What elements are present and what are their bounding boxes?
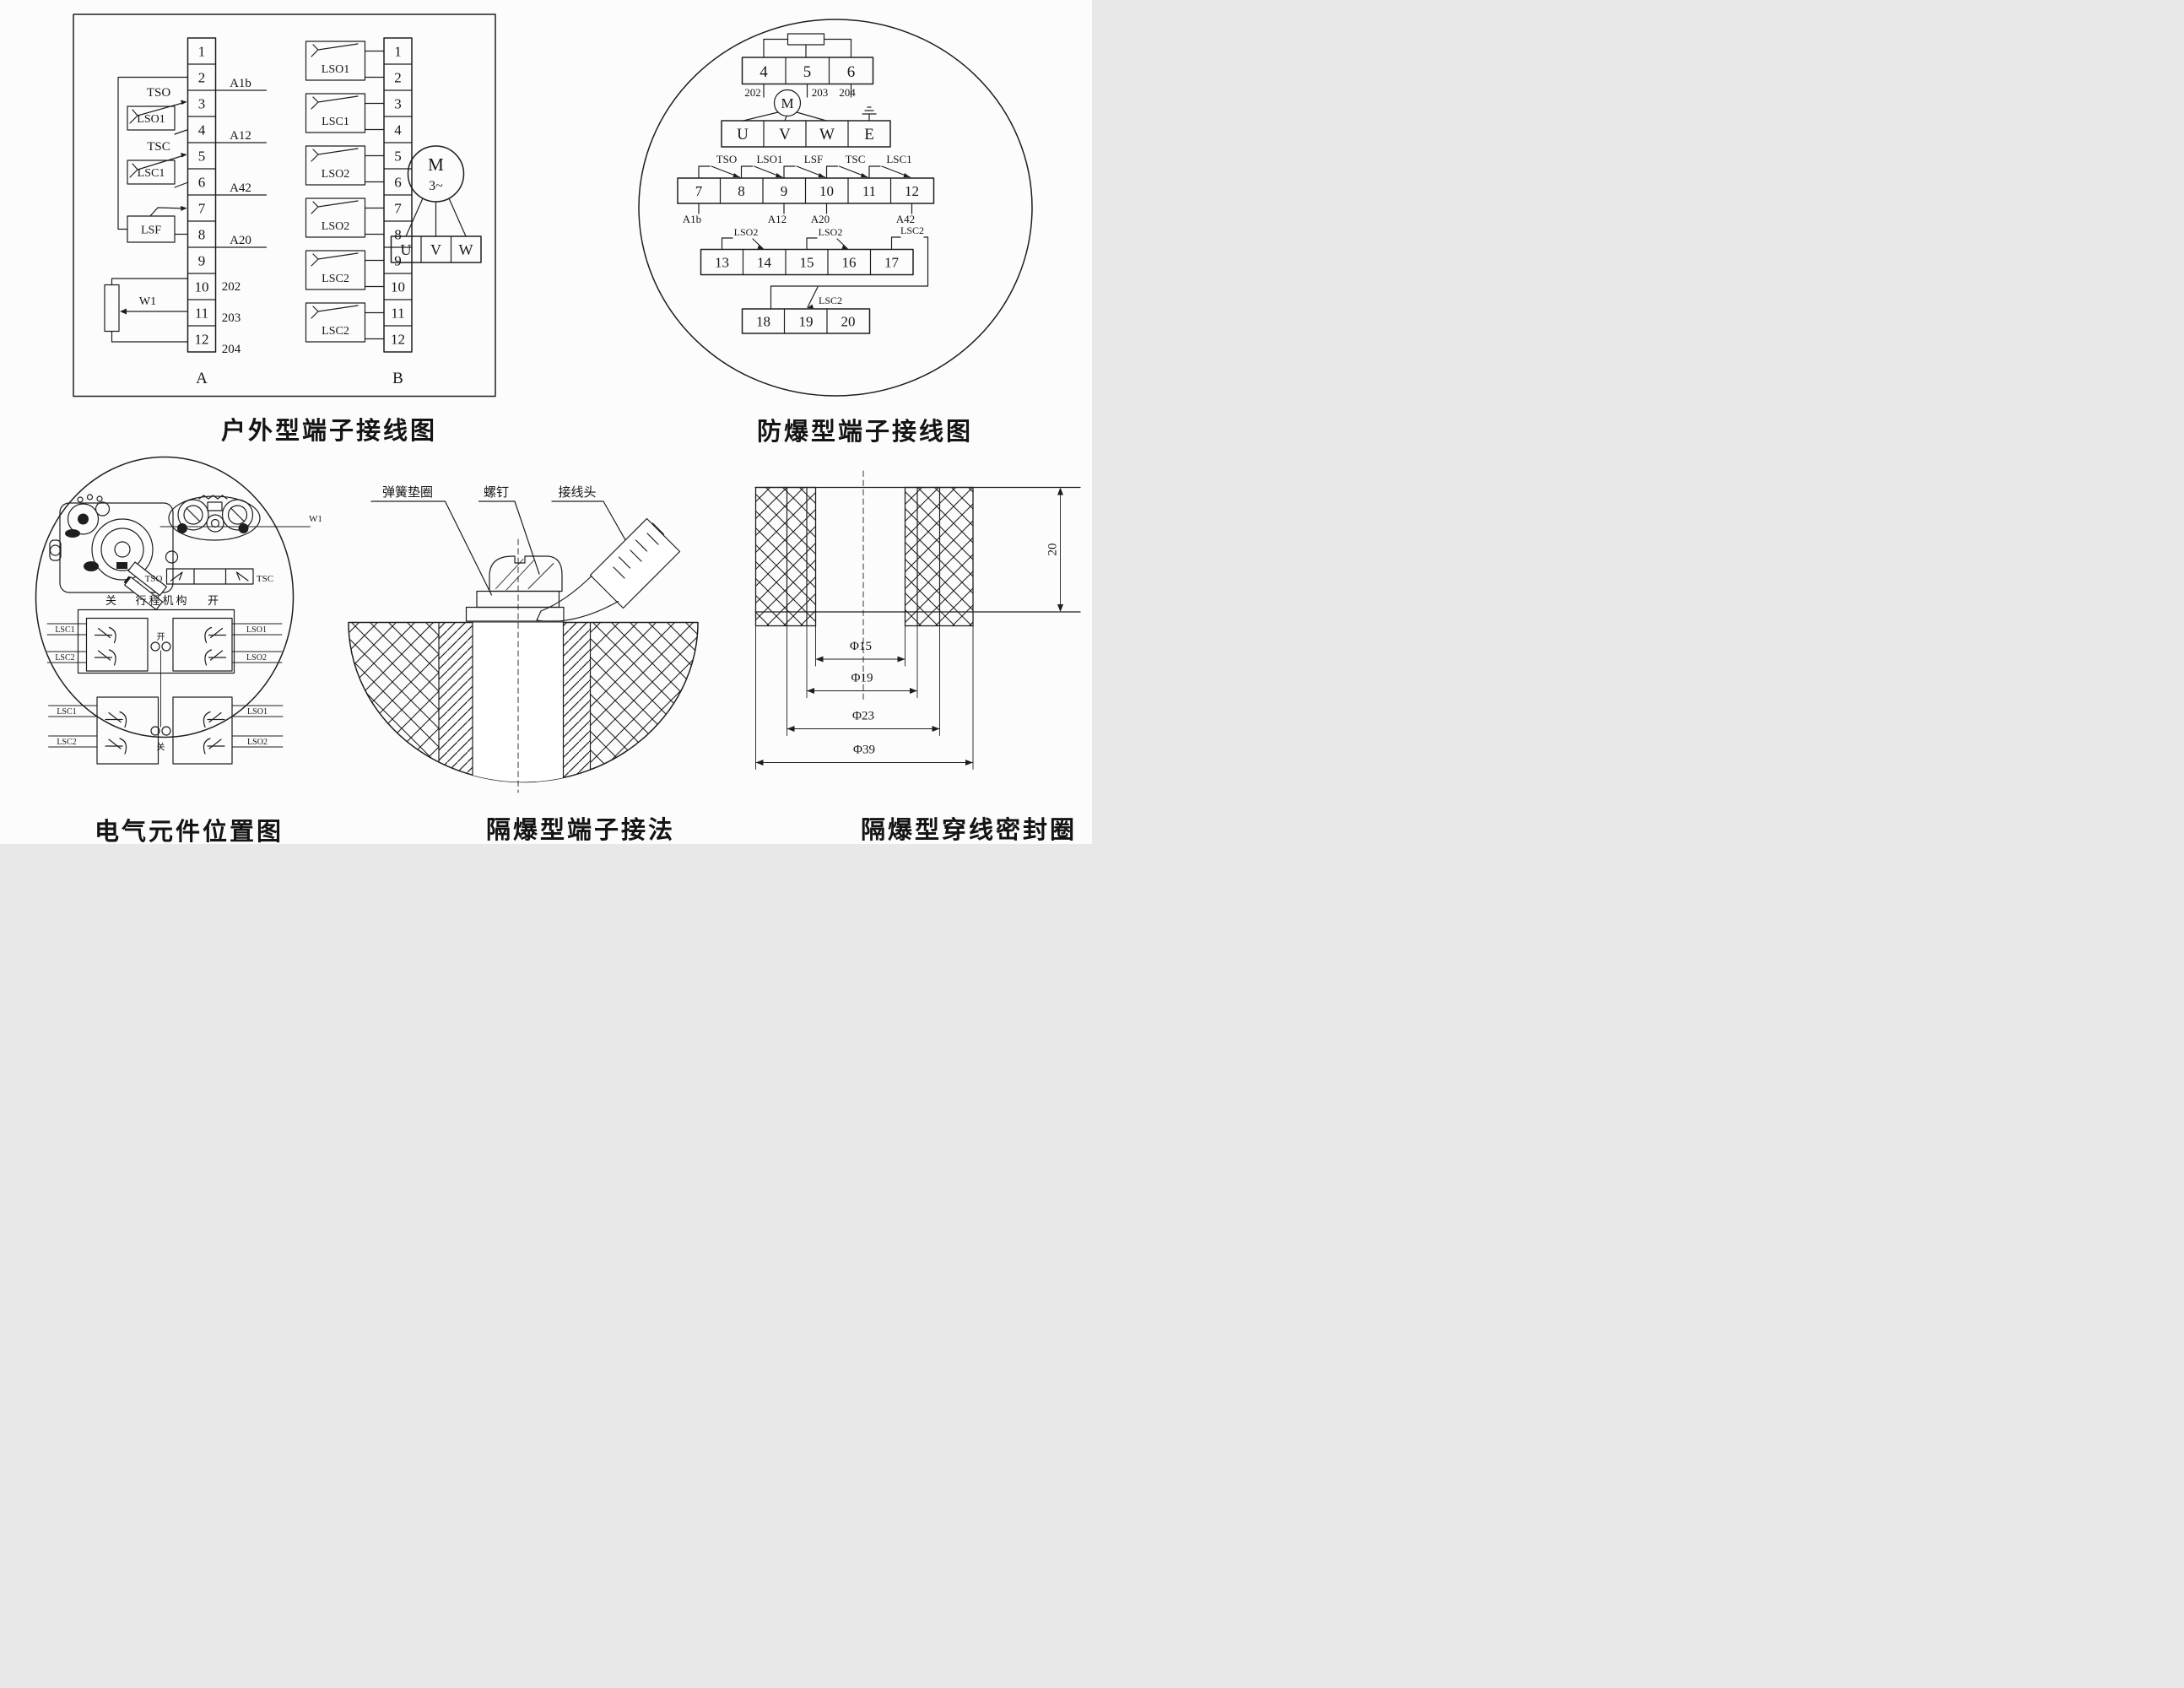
- terminal-number: 18: [756, 314, 770, 330]
- torque-switch-label-tso: TSO: [145, 574, 163, 584]
- terminal-letter: E: [864, 126, 874, 143]
- wire-label: 204: [222, 343, 241, 356]
- limit-switch-label: LSC2: [57, 738, 76, 747]
- gear-cluster-right: W1: [160, 495, 322, 540]
- explosionproof-terminal-wiring-figure: 4 5 6 202 203 204 M U V W E 7 8 9 10 11 …: [633, 13, 1038, 401]
- strip-a-switches: TSO LSO1 TSC LSC1 LSF: [118, 78, 188, 243]
- enclosure-circle: [639, 19, 1032, 396]
- limit-switch-label: LSC1: [57, 707, 76, 717]
- switch-label: LSO2: [734, 226, 759, 238]
- switch-box-label: LSC1: [322, 116, 349, 128]
- torque-switch-label-tsc: TSC: [257, 574, 273, 584]
- close-mark: 关: [157, 742, 165, 753]
- terminal-number: 1: [394, 44, 402, 60]
- caption-outdoor-wiring: 户外型端子接线图: [160, 411, 498, 446]
- screw-label: 螺钉: [484, 485, 509, 500]
- ring-section: [755, 471, 1080, 701]
- caption-sealing-ring: 隔爆型穿线密封圈: [800, 810, 1092, 844]
- terminal-strip-b: 1 2 3 4 5 6 7 8 9 10 11 12 B: [384, 38, 412, 387]
- switch-label-tsc: TSC: [147, 140, 170, 154]
- terminal-number: 7: [695, 183, 703, 199]
- screw-and-washer: [467, 556, 565, 621]
- terminal-number: 17: [884, 255, 900, 271]
- height-dim-label: 20: [1046, 544, 1060, 556]
- outdoor-terminal-wiring-figure: 1 2 3 4 5 6 7 8 9 10 11 12 A A1b A12 A42…: [68, 8, 502, 409]
- component-position-figure: W1 TSO TSC 关 行程机构 开 开 LSC1 LSC2 LSO1 LSO…: [34, 456, 329, 798]
- pot-label: W1: [139, 295, 156, 308]
- terminal-number: 4: [198, 122, 206, 138]
- switch-label: LSC2: [819, 295, 842, 306]
- dim-label: Φ23: [852, 710, 874, 723]
- height-dimension: 20: [1046, 488, 1064, 613]
- terminal-number: 16: [842, 255, 857, 271]
- limit-switch-label: LSO1: [247, 707, 268, 717]
- strip-b-switch-boxes: LSO1 LSC1 LSO2 LSO2 LSC2 LSC2: [306, 41, 385, 342]
- switch-label: TSO: [716, 153, 738, 165]
- terminal-row-13-17: 13 14 15 16 17 LSO2 LSO2 LSC2: [701, 225, 928, 308]
- terminal-number: 20: [841, 314, 856, 330]
- wire-label: A42: [230, 181, 251, 195]
- terminal-letter: U: [737, 126, 749, 143]
- terminal-number: 8: [394, 227, 402, 243]
- terminal-number: 10: [819, 183, 834, 199]
- diameter-dimensions: Φ15 Φ19 Φ23 Φ39: [756, 626, 974, 770]
- terminal-number: 11: [195, 306, 208, 322]
- terminal-number: 9: [781, 183, 788, 199]
- mech-side-label: 关: [105, 594, 116, 607]
- terminal-letter: V: [779, 126, 791, 143]
- terminal-strip-a: 1 2 3 4 5 6 7 8 9 10 11 12 A: [188, 38, 216, 387]
- motor-symbol: M 3~ U V W: [392, 146, 482, 262]
- switch-label-lso1: LSO1: [137, 113, 165, 126]
- wire-label: A42: [896, 213, 915, 225]
- spring-washer-label: 弹簧垫圈: [382, 485, 433, 500]
- switch-label: LSC1: [886, 153, 911, 165]
- terminal-number: 6: [198, 175, 206, 191]
- wire-label: 204: [839, 86, 856, 99]
- motor-terminal-v: V: [430, 241, 441, 258]
- pot-label: W1: [309, 514, 322, 524]
- terminal-number: 2: [198, 70, 206, 86]
- wire-label: 203: [812, 86, 829, 99]
- wire-label: A1b: [683, 213, 701, 225]
- terminal-number: 10: [195, 279, 209, 295]
- terminal-lug: [537, 519, 680, 622]
- mech-side-label: 开: [208, 594, 219, 607]
- strip-a-wire-tags: A1b A12 A42 A20 202 203 204: [216, 77, 267, 356]
- motor-terminal-w: W: [459, 241, 473, 258]
- wire-label: A1b: [230, 77, 251, 90]
- sealing-ring-figure: 20 Φ15 Φ19 Φ23 Φ39: [743, 464, 1089, 802]
- switch-box-label: LSO2: [322, 168, 349, 181]
- switch-box-label: LSC2: [322, 273, 349, 285]
- strip-b-label: B: [392, 370, 403, 387]
- switch-label: LSO2: [819, 226, 843, 238]
- terminal-number: 13: [715, 255, 729, 271]
- lower-switch-bank: 关 LSC1 LSC2 LSO1 LSO2: [49, 697, 284, 764]
- terminal-row-4-6: 4 5 6 202 203 204: [743, 57, 873, 99]
- terminal-number: 4: [394, 122, 402, 138]
- limit-switch-label: LSO2: [247, 738, 268, 747]
- caption-component-position: 电气元件位置图: [20, 812, 358, 844]
- terminal-row-uvwe: U V W E: [722, 107, 890, 147]
- wire-label: A20: [230, 234, 251, 247]
- motor-terminal-u: U: [401, 241, 412, 258]
- terminal-number: 5: [394, 149, 402, 165]
- wire-label: 202: [744, 86, 761, 99]
- terminal-number: 6: [394, 175, 402, 191]
- wire-label: 202: [222, 280, 241, 294]
- wire-label: A12: [768, 213, 787, 225]
- feedback-resistor: [764, 34, 851, 57]
- terminal-number: 19: [799, 314, 814, 330]
- terminal-number: 4: [760, 63, 768, 81]
- caption-explosionproof: 防爆型端子接线图: [696, 412, 1034, 447]
- terminal-number: 6: [847, 63, 856, 81]
- terminal-number: 12: [905, 183, 919, 199]
- limit-switch-label: LSO1: [246, 625, 267, 635]
- terminal-number: 1: [198, 44, 206, 60]
- motor-phase: 3~: [429, 179, 443, 193]
- terminal-letter: W: [819, 126, 835, 143]
- terminal-number: 9: [198, 253, 206, 269]
- dim-label: Φ39: [853, 744, 875, 757]
- switch-label: LSF: [804, 153, 823, 165]
- limit-switch-label: LSO2: [246, 653, 267, 663]
- figure-border: [73, 14, 495, 397]
- wire-label: A12: [230, 129, 251, 143]
- limit-switch-label: LSC2: [55, 653, 74, 663]
- wire-label: 203: [222, 311, 241, 325]
- dim-label: Φ15: [850, 640, 872, 653]
- switch-box-label: LSO1: [322, 63, 349, 76]
- dim-label: Φ19: [851, 672, 873, 685]
- gear-cluster-left: [50, 495, 178, 609]
- terminal-number: 5: [803, 63, 812, 81]
- boss-section: [349, 623, 699, 786]
- terminal-number: 11: [391, 306, 404, 322]
- terminal-row-7-12: 7 8 9 10 11 12 TSO LSO1 LSF TSC LSC1 A1b…: [678, 153, 934, 225]
- caption-terminal-connection: 隔爆型端子接法: [412, 810, 749, 844]
- terminal-number: 2: [394, 70, 402, 86]
- switch-box-label: LSC2: [322, 325, 349, 338]
- potentiometer-w1: W1: [105, 279, 188, 342]
- terminal-number: 3: [394, 96, 402, 112]
- switch-label-tso: TSO: [147, 86, 171, 100]
- terminal-number: 10: [391, 279, 405, 295]
- switch-label-lsc1: LSC1: [138, 167, 165, 180]
- open-mark: 开: [157, 633, 165, 642]
- terminal-number: 12: [391, 332, 405, 348]
- terminal-number: 5: [198, 149, 206, 165]
- terminal-number: 12: [195, 332, 209, 348]
- switch-label-lsf: LSF: [141, 225, 161, 237]
- terminal-row-18-20: LSC2 18 19 20: [743, 287, 870, 333]
- torque-switch-band: TSO TSC: [145, 569, 273, 584]
- scanned-manual-page: 1 2 3 4 5 6 7 8 9 10 11 12 A A1b A12 A42…: [0, 0, 1092, 844]
- mech-title: 行程机构: [135, 594, 189, 607]
- terminal-number: 7: [198, 201, 206, 217]
- terminal-number: 15: [800, 255, 814, 271]
- ground-icon: [862, 107, 876, 121]
- terminal-number: 7: [394, 201, 402, 217]
- motor-letter: M: [781, 95, 793, 111]
- terminal-number: 8: [738, 183, 745, 199]
- motor-letter: M: [428, 154, 444, 175]
- limit-switch-label: LSC1: [55, 625, 74, 635]
- lug-label: 接线头: [558, 485, 596, 500]
- switch-label: LSO1: [756, 153, 782, 165]
- travel-mechanism: 关 行程机构 开 开 LSC1 LSC2 LSO1 LSO2: [47, 594, 282, 727]
- switch-box-label: LSO2: [322, 220, 349, 233]
- terminal-number: 3: [198, 96, 206, 112]
- terminal-number: 11: [862, 183, 876, 199]
- wire-label: A20: [811, 213, 830, 225]
- terminal-number: 14: [757, 255, 772, 271]
- switch-label: LSC2: [900, 225, 924, 236]
- strip-a-label: A: [196, 370, 208, 387]
- terminal-number: 8: [198, 227, 206, 243]
- flameproof-terminal-connection-figure: 弹簧垫圈 螺钉 接线头: [346, 468, 709, 798]
- switch-label: TSC: [846, 153, 866, 165]
